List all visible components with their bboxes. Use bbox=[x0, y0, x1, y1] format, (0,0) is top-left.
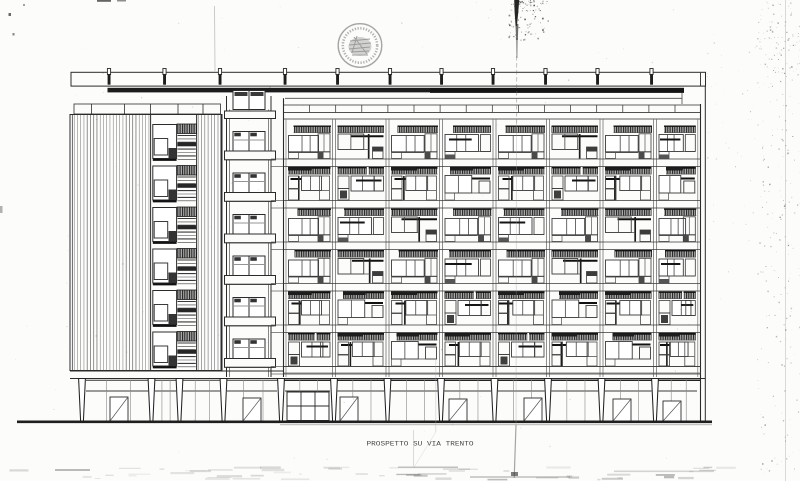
svg-text:PROSPETTO SU VIA TRENTO: PROSPETTO SU VIA TRENTO bbox=[367, 441, 474, 448]
